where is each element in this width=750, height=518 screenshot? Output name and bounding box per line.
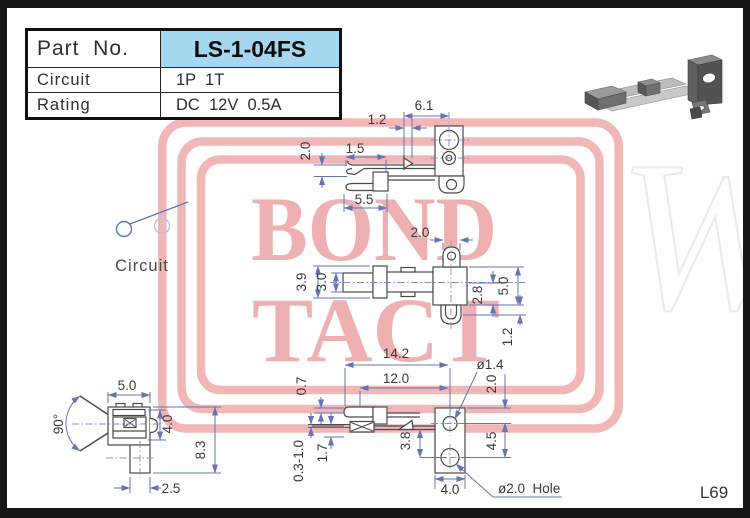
dim-dia-2-0-hole: ø2.0 Hole [498,481,560,496]
dim-2-8: 2.8 [470,286,485,305]
dim-1-7: 1.7 [315,444,330,463]
circuit-terminal-right [155,219,170,234]
part-no-label: Part No. [28,31,161,67]
dim-3-0: 3.0 [314,273,329,292]
dim-6-1: 6.1 [415,98,434,113]
dim-4-0-v3: 4.0 [441,482,460,497]
dim-0-7: 0.7 [294,377,309,396]
dim-3-9: 3.9 [294,273,309,292]
dim-8-3: 8.3 [193,441,208,460]
dim-14-2: 14.2 [383,346,409,361]
part-3d-render [578,45,738,125]
dim-5-0-v2: 5.0 [496,277,511,296]
dim-1-5: 1.5 [346,141,365,156]
circuit-symbol: Circuit [115,202,188,275]
dim-4-5: 4.5 [484,432,499,451]
dim-5-0-v4: 5.0 [118,378,137,393]
rating-row-label: Rating [28,93,161,117]
circuit-label: Circuit [115,257,169,275]
datasheet-page: W BOND TACT Circuit [0,0,750,518]
rating-row-value: DC 12V 0.5A [161,93,339,117]
dim-2-0-v3: 2.0 [484,375,499,394]
view-bottom-side: 14.2 12.0 ø1.4 2.0 4.5 3.8 0.7 0.3-1.0 1… [291,346,562,497]
circuit-terminal-left [117,222,132,237]
table-row-rating: Rating DC 12V 0.5A [28,92,339,117]
dim-3-8: 3.8 [398,432,413,451]
dim-4-0-v4: 4.0 [160,415,175,434]
dim-5-5: 5.5 [355,192,374,207]
spec-table: Part No. LS-1-04FS Circuit 1P 1T Rating … [25,28,342,120]
dim-1-2: 1.2 [368,112,387,127]
circuit-row-value: 1P 1T [161,68,339,92]
view-plan: 2.0 3.9 3.0 2.8 5.0 1.2 [294,225,526,346]
part-no-value: LS-1-04FS [161,31,339,67]
dim-2-5: 2.5 [162,481,181,496]
dim-2-0-v1: 2.0 [298,142,313,161]
table-row-circuit: Circuit 1P 1T [28,67,339,92]
dim-2-0-v2: 2.0 [411,225,430,240]
table-row-part-no: Part No. LS-1-04FS [28,31,339,67]
page-code: L69 [700,483,728,502]
dim-90deg: 90° [51,414,66,434]
view-end: 5.0 90° 4.0 8.3 2.5 [51,378,221,496]
dim-1-2-v2: 1.2 [500,328,515,347]
dim-0-3-1-0: 0.3-1.0 [291,440,306,482]
dim-dia-1-4: ø1.4 [476,357,504,372]
dim-12-0: 12.0 [383,371,409,386]
circuit-row-label: Circuit [28,68,161,92]
